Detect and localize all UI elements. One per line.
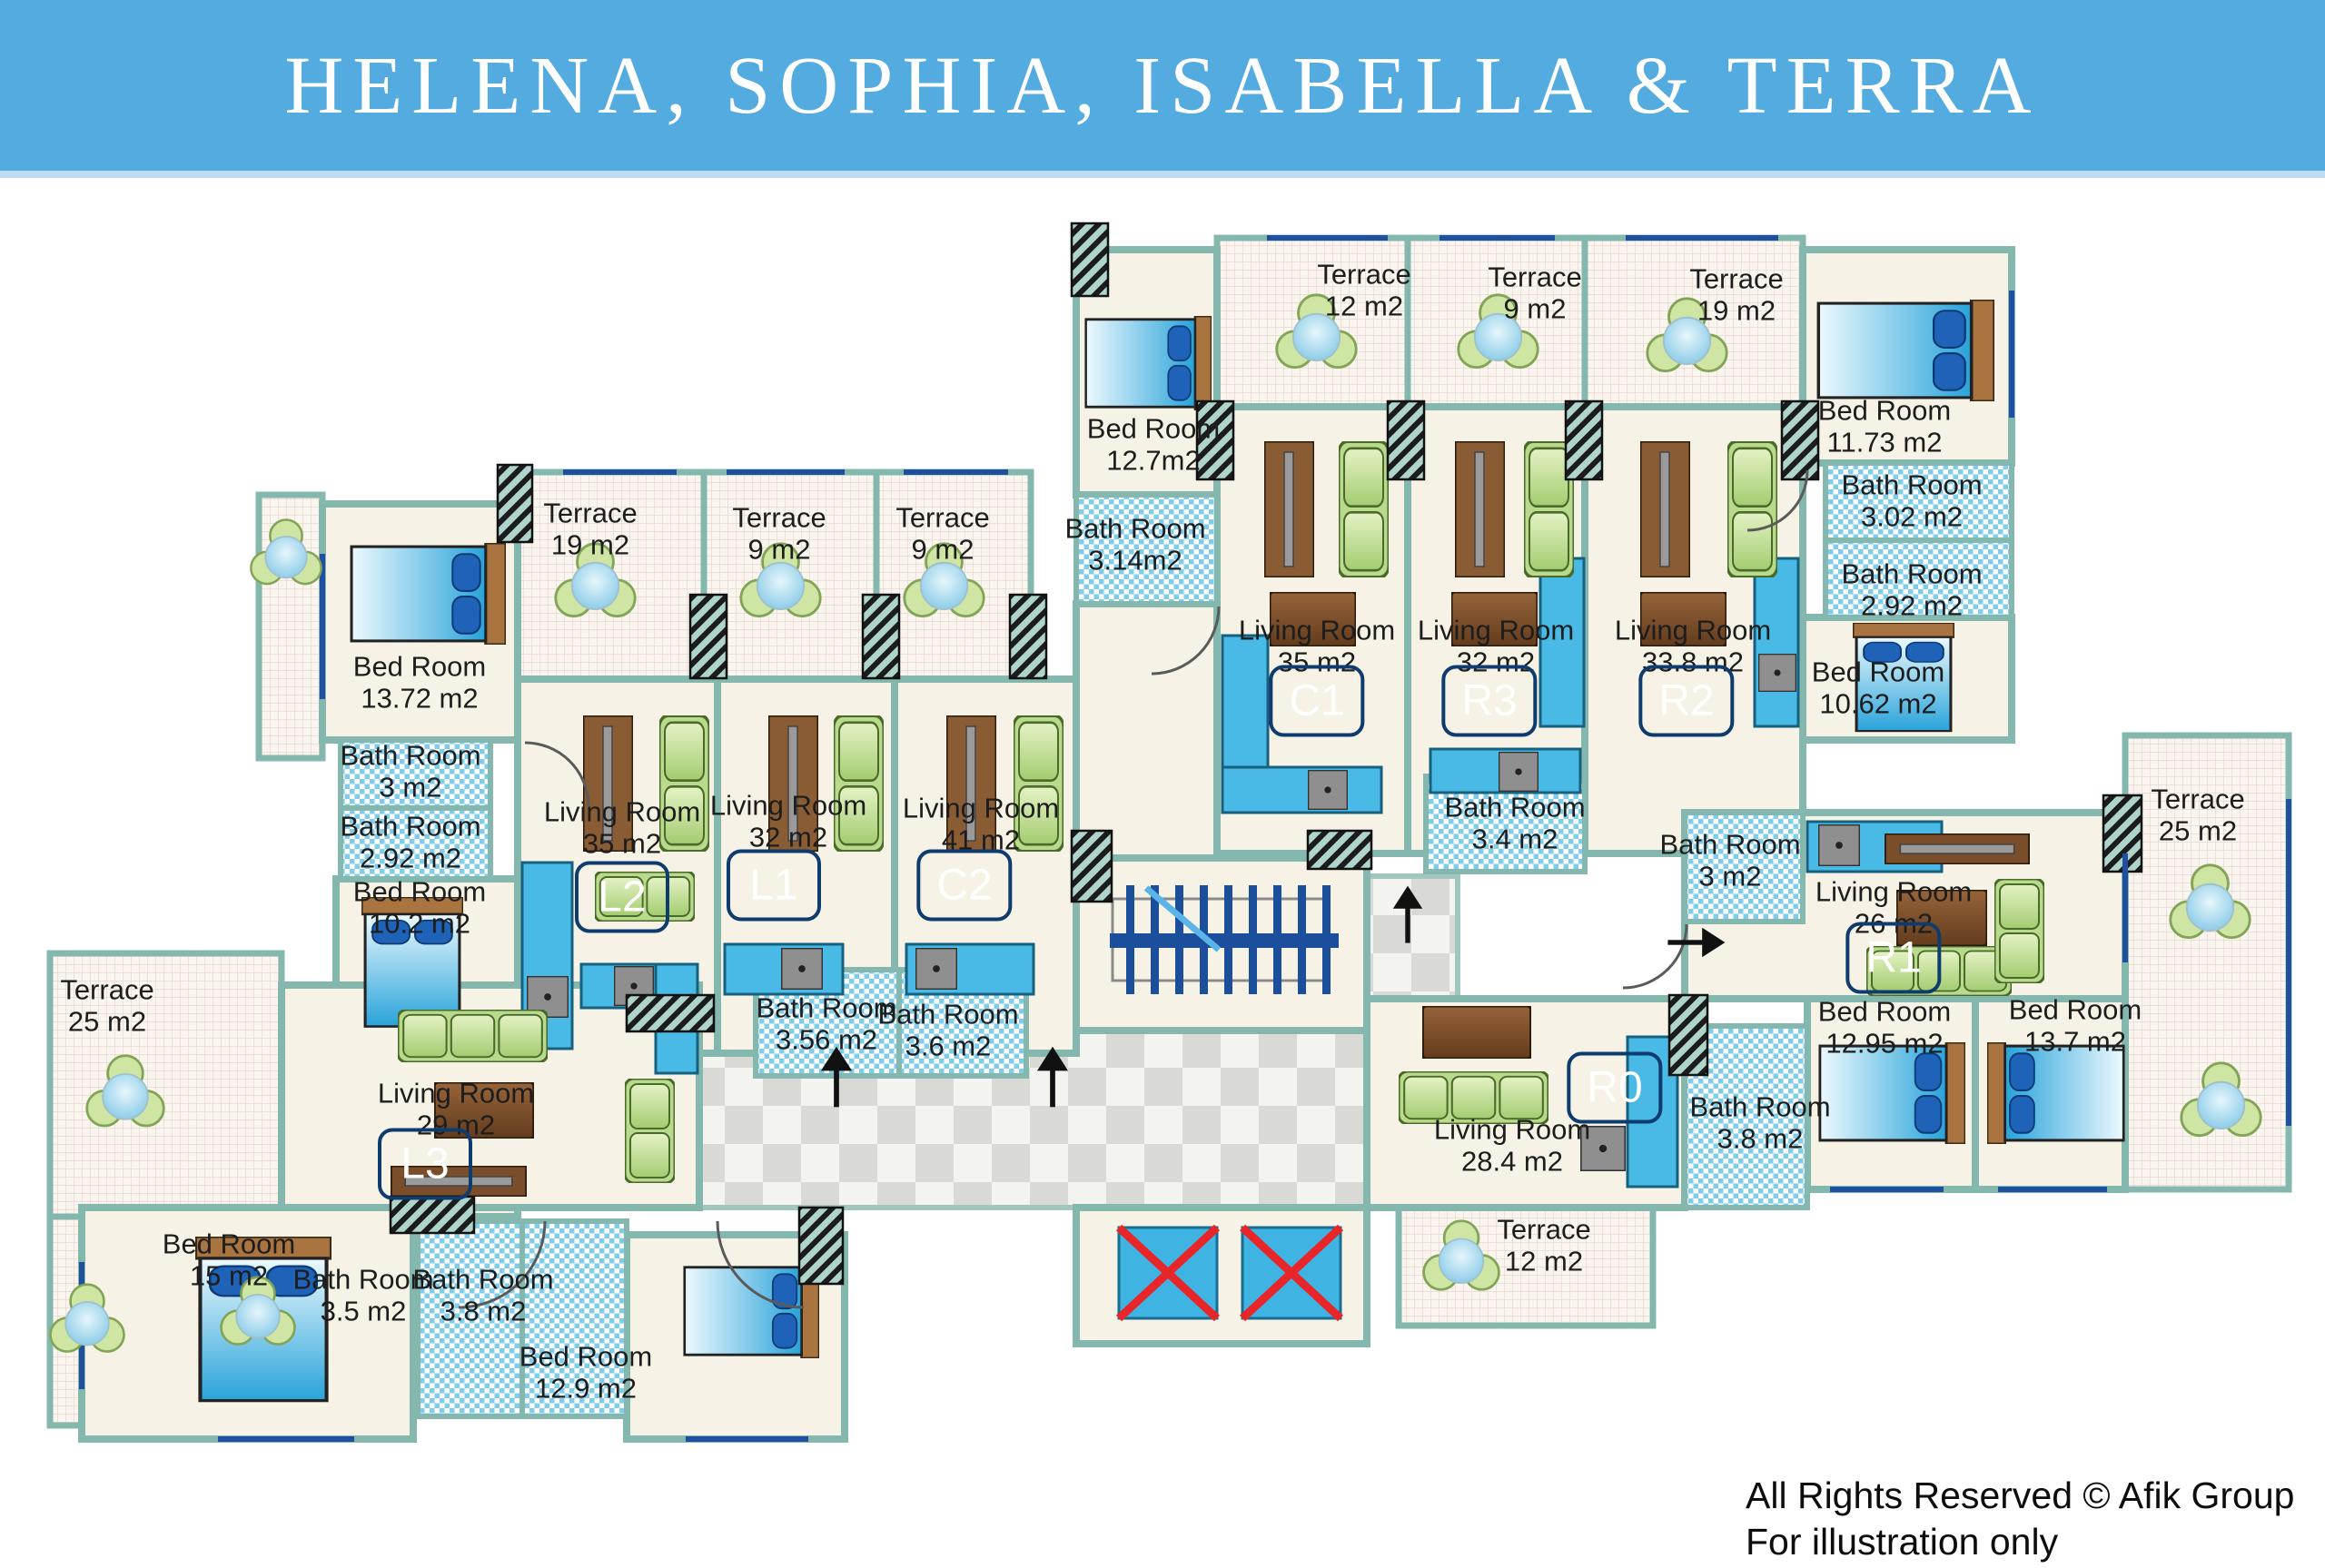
unit-chip-l1: L1 <box>727 850 821 922</box>
room-label: Bed Room12.7m2 <box>1087 413 1220 476</box>
disclaimer-line: For illustration only <box>1746 1519 2294 1565</box>
bed-icon <box>1818 300 1994 401</box>
room-label: Terrace9 m2 <box>1488 261 1581 324</box>
room-label: Bed Room13.7 m2 <box>2009 994 2142 1057</box>
wardrobe-icon <box>1264 441 1314 577</box>
room-label: Terrace19 m2 <box>1689 263 1783 326</box>
sofa-icon <box>1994 879 2044 983</box>
bed-icon <box>1987 1042 2123 1144</box>
hall-center <box>1076 604 1217 858</box>
bed-icon <box>351 543 506 645</box>
stove-icon <box>781 948 823 990</box>
sofa-icon <box>625 1079 675 1183</box>
room-label: Bath Room3 m2 <box>340 740 480 803</box>
room-label: Terrace25 m2 <box>60 974 153 1037</box>
room-label: Bath Room3.8 m2 <box>412 1264 553 1326</box>
room-label: Bath Room2.92 m2 <box>340 811 480 873</box>
stove-icon <box>1499 752 1538 792</box>
copyright-line: All Rights Reserved © Afik Group <box>1746 1473 2294 1519</box>
room-label: Bed Room15 m2 <box>163 1228 295 1291</box>
room-label: Bath Room3.02 m2 <box>1841 469 1982 532</box>
table-icon <box>1422 1006 1531 1059</box>
stove-icon <box>1818 824 1860 866</box>
unit-chip-r2: R2 <box>1638 666 1734 737</box>
room-label: Bath Room3 m2 <box>1659 829 1800 892</box>
bed-icon <box>1086 316 1212 410</box>
unit-chip-r0: R0 <box>1567 1052 1662 1124</box>
room-label: Bed Room12.95 m2 <box>1818 996 1951 1059</box>
room-label: Living Room41 m2 <box>903 793 1059 855</box>
room-label: Terrace25 m2 <box>2151 784 2244 846</box>
unit-chip-r1: R1 <box>1845 922 1941 994</box>
unit-chip-c2: C2 <box>916 850 1012 922</box>
room-label: Bed Room10.2 m2 <box>353 876 486 939</box>
unit-chip-l3: L3 <box>378 1129 472 1200</box>
title-bar: HELENA, SOPHIA, ISABELLA & TERRA <box>0 0 2325 178</box>
room-label: Living Room32 m2 <box>710 790 866 853</box>
unit-chip-l2: L2 <box>575 862 669 933</box>
page-title: HELENA, SOPHIA, ISABELLA & TERRA <box>284 39 2040 133</box>
room-label: Living Room35 m2 <box>544 796 700 859</box>
room-label: Terrace19 m2 <box>543 498 637 560</box>
wardrobe-icon <box>1640 441 1690 577</box>
room-label: Terrace9 m2 <box>732 502 826 565</box>
stove-icon <box>1308 770 1348 810</box>
unit-chip-c1: C1 <box>1269 666 1364 737</box>
room-label: Terrace12 m2 <box>1497 1214 1590 1277</box>
room-label: Bath Room3.56 m2 <box>756 992 896 1055</box>
room-label: Bath Room2.92 m2 <box>1841 558 1982 621</box>
room-label: Bed Room11.73 m2 <box>1818 395 1951 458</box>
room-label: Terrace9 m2 <box>895 502 989 565</box>
sofa-icon <box>1339 441 1389 577</box>
stove-icon <box>915 948 957 990</box>
room-label: Bed Room12.9 m2 <box>519 1341 652 1404</box>
room-label: Bath Room3.4 m2 <box>1444 792 1585 854</box>
room-label: Bed Room10.62 m2 <box>1812 656 1944 719</box>
room-label: Bed Room13.72 m2 <box>353 651 486 714</box>
room-label: Terrace12 m2 <box>1317 259 1410 321</box>
tv-table-icon <box>1885 833 2030 864</box>
room-label: Bath Room3.6 m2 <box>877 999 1018 1061</box>
room-label: Living Room28.4 m2 <box>1434 1114 1590 1177</box>
sofa-icon <box>398 1010 548 1062</box>
room-label: Bath Room3.14m2 <box>1064 513 1205 576</box>
floor-plan-page: HELENA, SOPHIA, ISABELLA & TERRA <box>0 0 2325 1568</box>
copyright-note: All Rights Reserved © Afik Group For ill… <box>1746 1473 2294 1566</box>
sofa-icon <box>1727 441 1777 577</box>
room-label: Bath Room3.8 m2 <box>1689 1091 1830 1154</box>
unit-chip-r3: R3 <box>1441 666 1537 737</box>
wardrobe-icon <box>1455 441 1505 577</box>
